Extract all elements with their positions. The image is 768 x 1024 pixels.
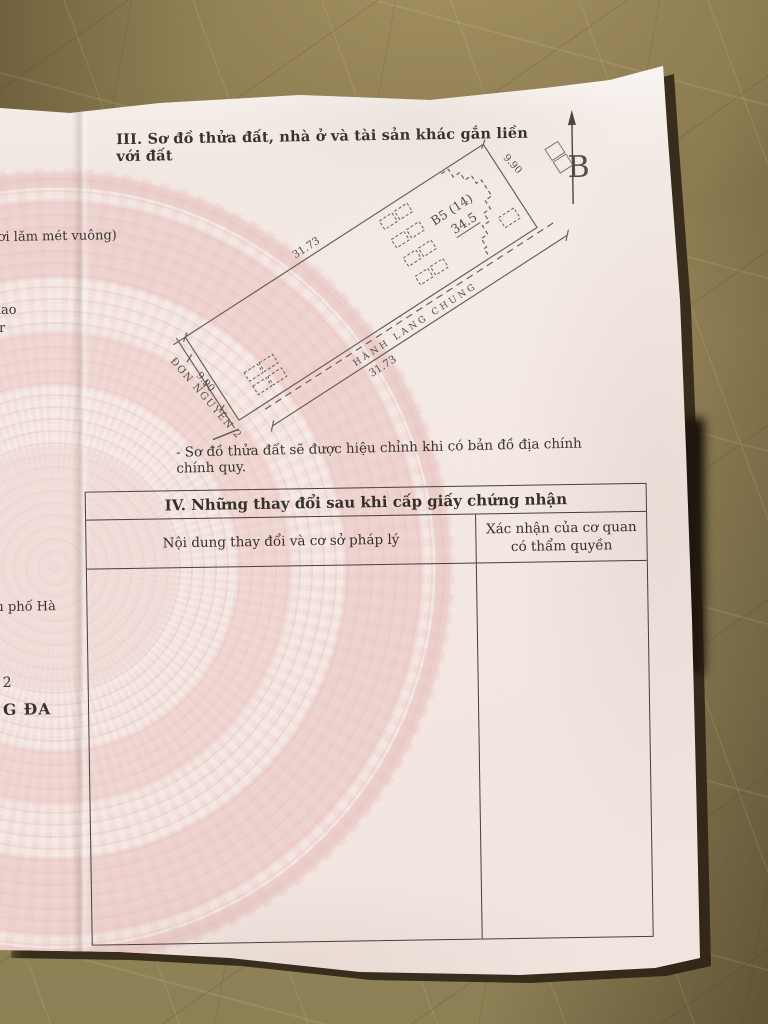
left-page-fragment: 2 <box>3 675 12 691</box>
dim-right-label: 9.90 <box>501 152 524 176</box>
photo-of-land-certificate: III. Sơ đồ thửa đất, nhà ở và tài sản kh… <box>0 0 768 1024</box>
table-header-row: Nội dung thay đổi và cơ sở pháp lý Xác n… <box>86 512 647 570</box>
dim-top-label: 31.73 <box>290 235 322 261</box>
corridor-label: HÀNH LANG CHUNG <box>351 280 480 369</box>
col2-header-line2: có thẩm quyền <box>511 536 613 556</box>
dimension-ticks-left <box>174 140 532 413</box>
building-strip-outline <box>185 144 537 420</box>
north-arrow: B <box>567 110 591 204</box>
left-page-fragment: r <box>0 321 5 336</box>
certificate-page: III. Sơ đồ thửa đất, nhà ở và tài sản kh… <box>0 0 768 1024</box>
corridor-bottom-line <box>272 235 567 426</box>
plot-diagram: B <box>104 95 674 444</box>
printed-content: III. Sơ đồ thửa đất, nhà ở và tài sản kh… <box>0 0 768 1024</box>
left-unit-boxes <box>244 354 287 394</box>
col2-header-line1: Xác nhận của cơ quan <box>486 518 637 539</box>
table-body-row <box>87 561 653 945</box>
left-page-fragment: iao <box>0 303 17 318</box>
col2-header: Xác nhận của cơ quan có thẩm quyền <box>476 512 647 563</box>
col1-empty-cell <box>87 564 483 945</box>
col2-empty-cell <box>477 561 653 939</box>
section4-table: IV. Những thay đổi sau khi cấp giấy chứn… <box>85 483 654 946</box>
balcony-dashed-box <box>499 208 521 228</box>
col1-header: Nội dung thay đổi và cơ sở pháp lý <box>86 515 477 569</box>
left-page-fragment: G ĐA <box>3 699 52 719</box>
left-page-fragment: u phố Hà <box>0 599 56 615</box>
left-page-fragment: ơi lăm mét vuông) <box>0 228 117 245</box>
north-label: B <box>567 150 590 185</box>
